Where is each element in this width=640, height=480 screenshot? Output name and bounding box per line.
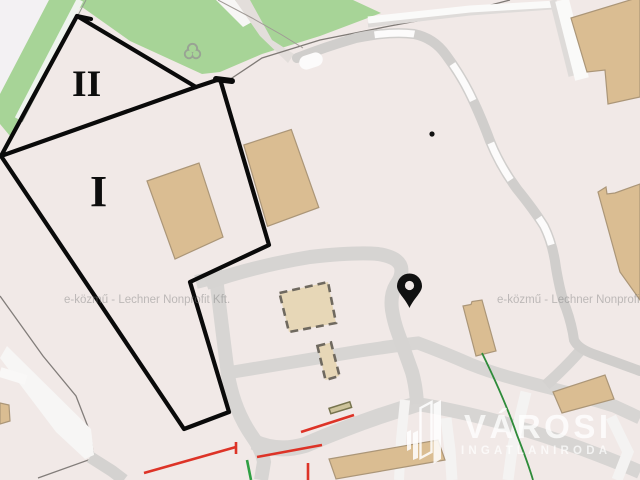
svg-text:II: II <box>72 64 101 105</box>
svg-text:e-közmű - Lechner Nonprofit Kf: e-közmű - Lechner Nonprofit Kft. <box>497 294 640 306</box>
svg-text:VÁROSI: VÁROSI <box>464 408 612 445</box>
svg-text:I: I <box>90 167 107 216</box>
svg-text:INGATLANIRODA: INGATLANIRODA <box>461 445 611 457</box>
svg-text:e-közmű - Lechner Nonprofit Kf: e-közmű - Lechner Nonprofit Kft. <box>64 294 230 306</box>
